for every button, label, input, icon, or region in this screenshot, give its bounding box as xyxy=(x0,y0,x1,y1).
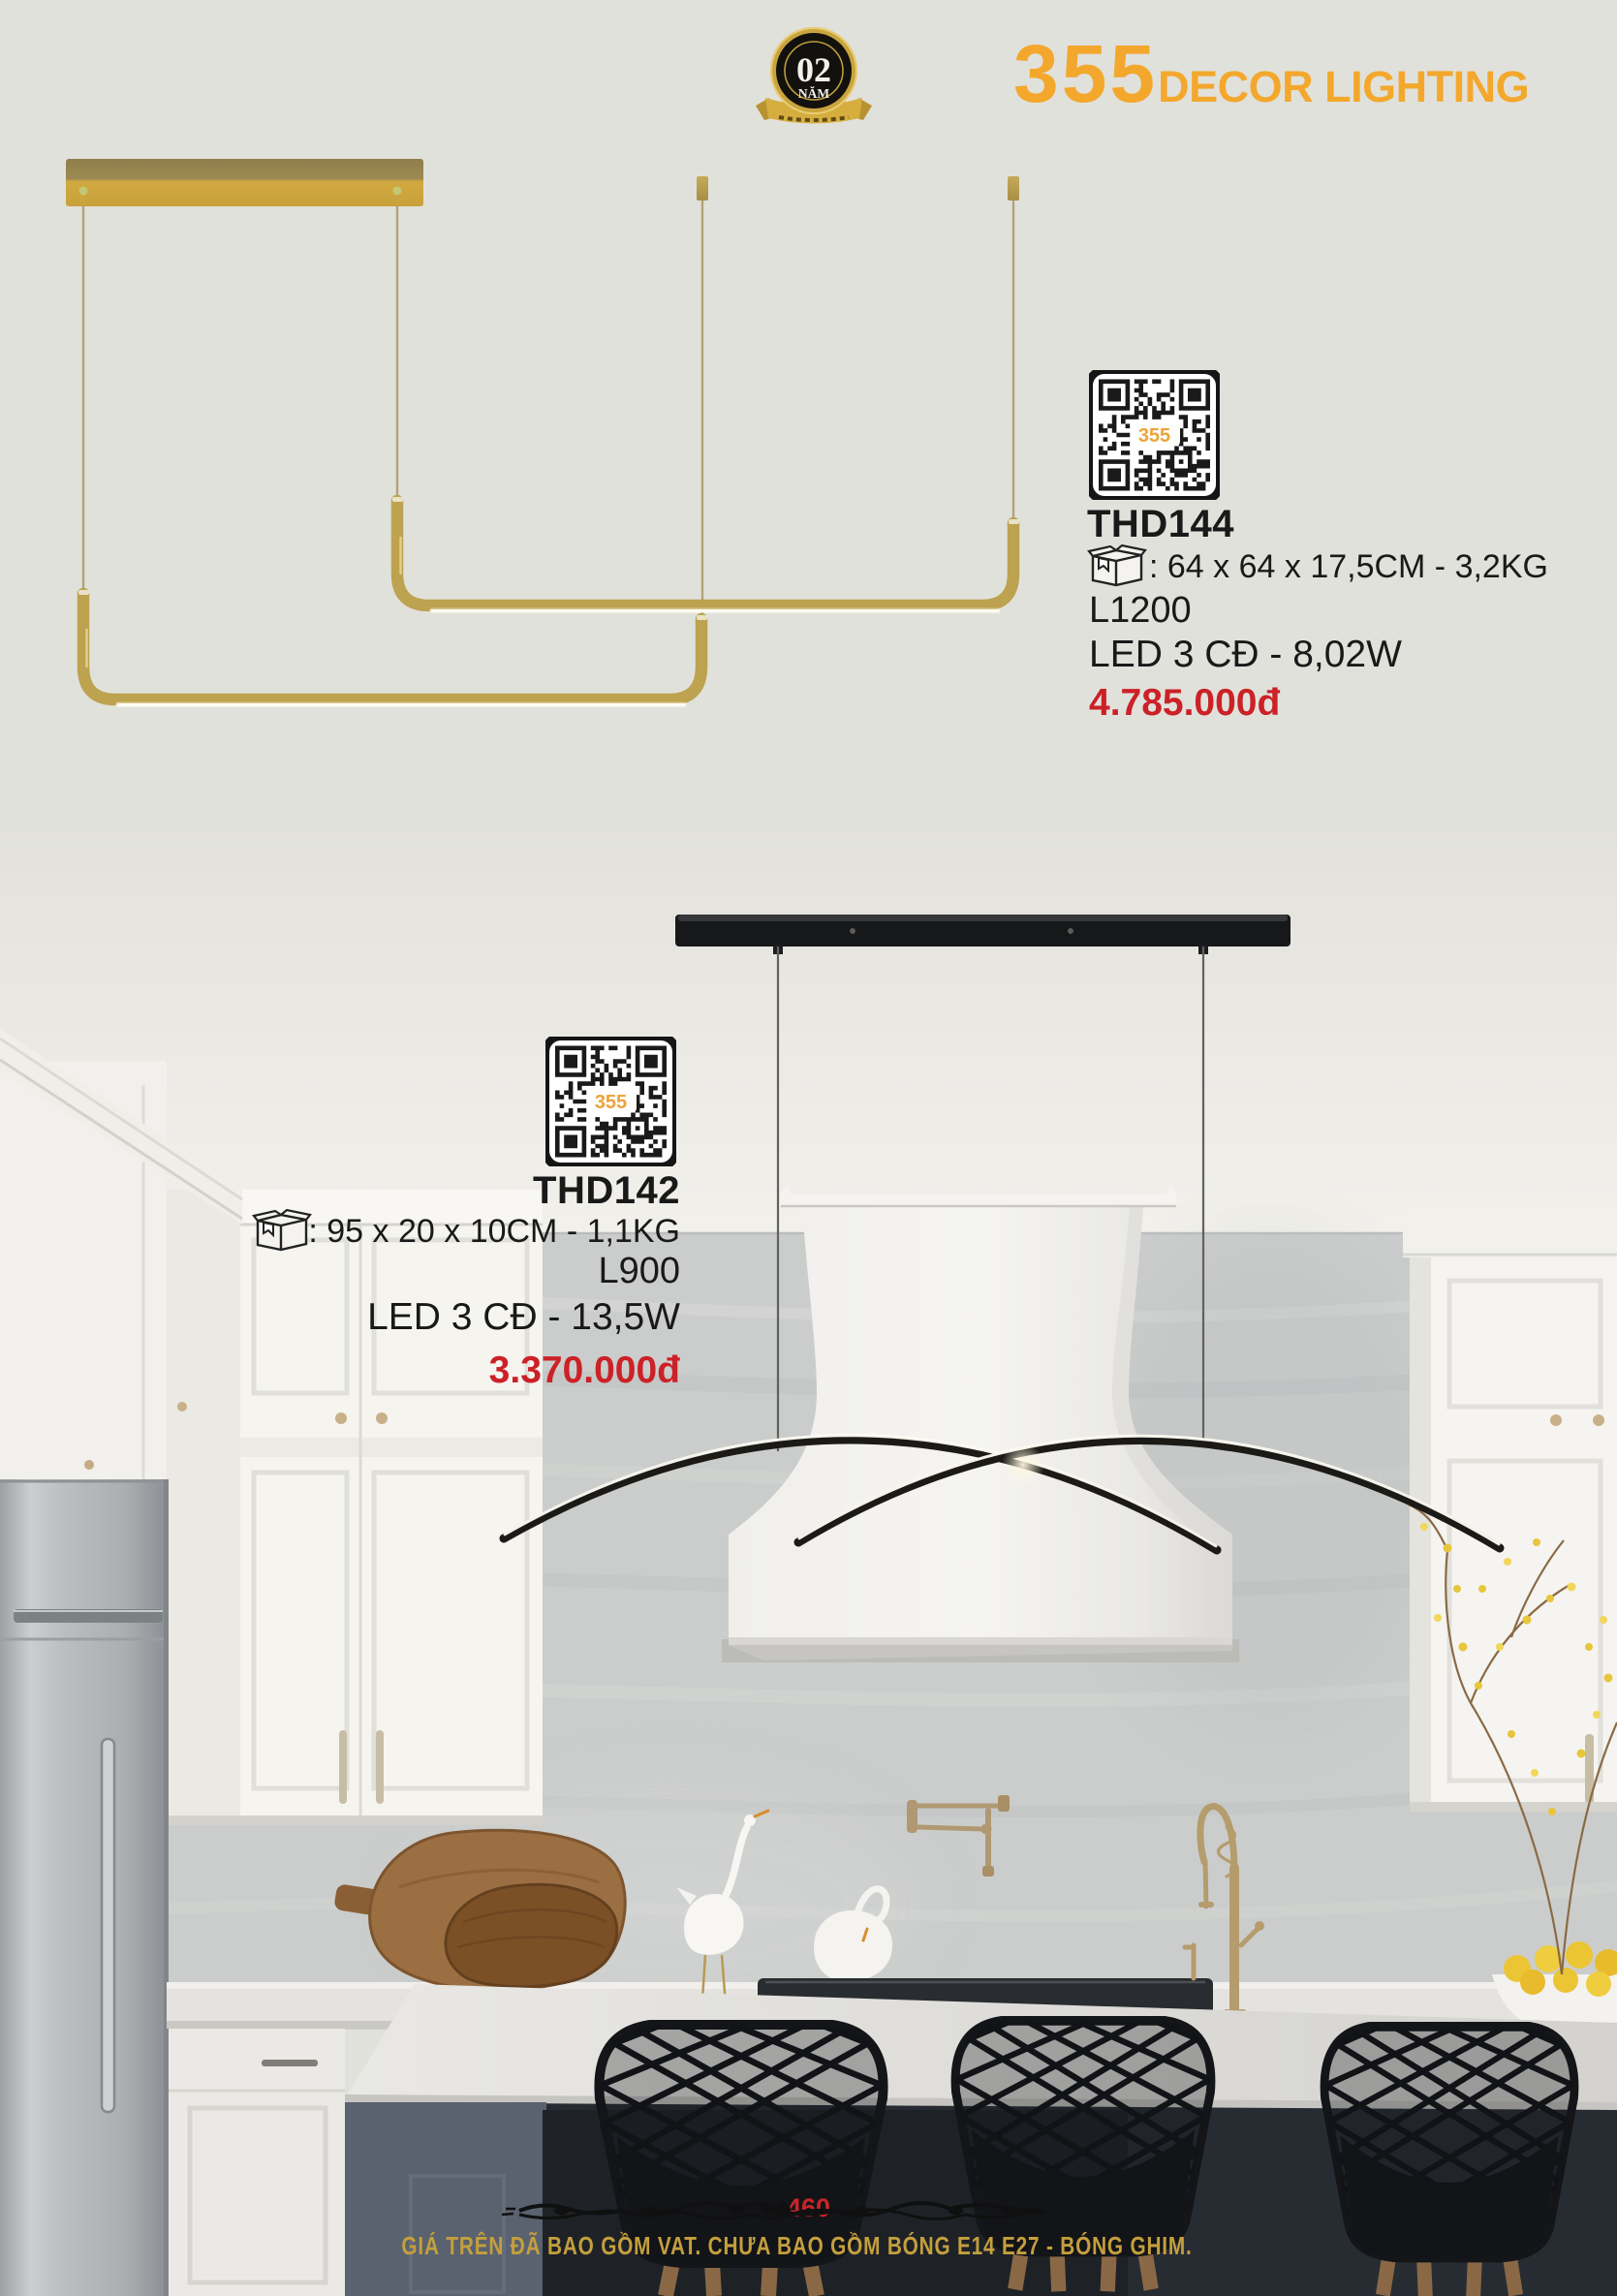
svg-text:02: 02 xyxy=(796,50,831,89)
svg-text:NĂM: NĂM xyxy=(798,86,829,101)
